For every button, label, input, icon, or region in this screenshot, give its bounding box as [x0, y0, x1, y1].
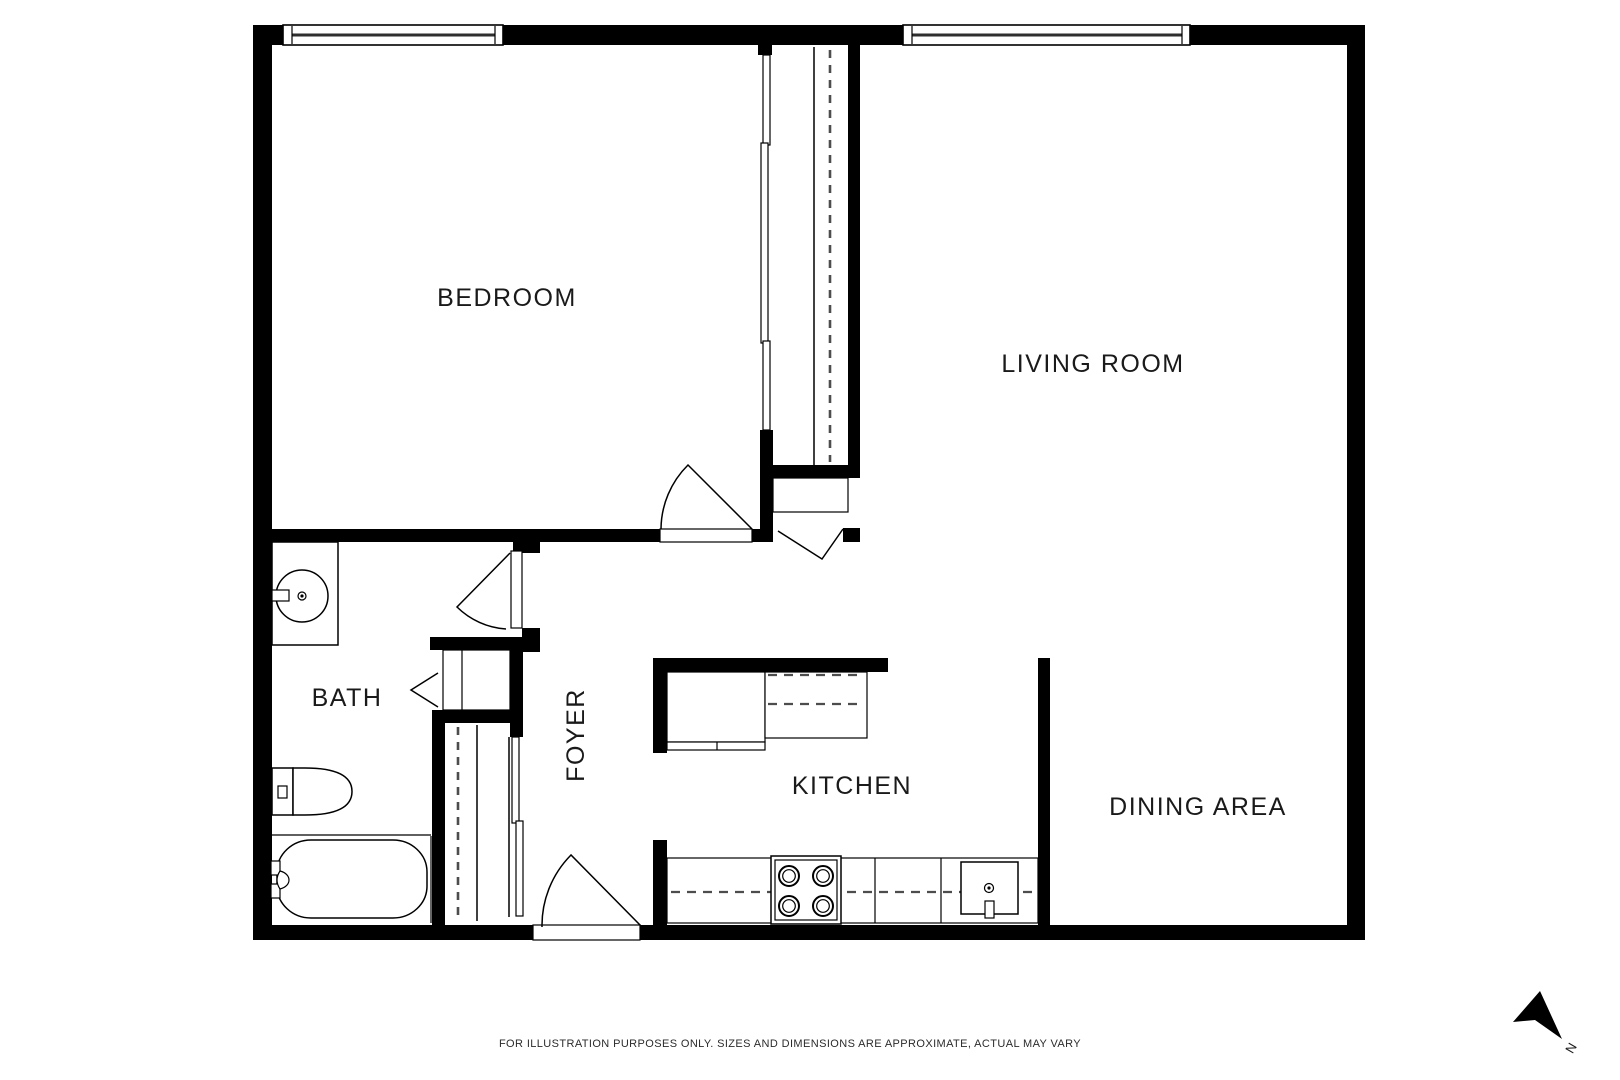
- bathtub: [277, 840, 427, 918]
- north-label: N: [1562, 1040, 1580, 1056]
- linen-closet-interior: [443, 650, 510, 710]
- bedroom-door: [660, 465, 752, 542]
- foyer-closet: [458, 725, 523, 921]
- entry-closet-recess: [773, 478, 848, 512]
- kitchen-label: KITCHEN: [792, 772, 912, 800]
- closet-south-wall: [762, 465, 860, 478]
- bedroom-south-wall: [272, 529, 660, 542]
- door-swing: [457, 553, 510, 629]
- sink-faucet: [272, 590, 289, 601]
- cabinet-shelf: [667, 742, 765, 750]
- entry-closet: [773, 478, 848, 559]
- north-arrow-icon: [1513, 991, 1562, 1039]
- north-arrow: N: [1513, 991, 1580, 1056]
- bedroom-label: BEDROOM: [437, 284, 577, 312]
- bath-label: BATH: [312, 684, 383, 712]
- floor-plan-page: BEDROOM LIVING ROOM BATH FOYER KITCHEN D…: [0, 0, 1620, 1080]
- bathroom-fixtures: [271, 542, 431, 923]
- bedroom-closet: [761, 47, 830, 465]
- foyer-closet-wall-stub: [510, 723, 523, 737]
- foyer-label: FOYER: [562, 688, 590, 782]
- linen-closet: [411, 650, 510, 710]
- living-room-west-wall: [848, 45, 860, 478]
- bath-foyer-wall: [522, 628, 540, 652]
- sink-handle: [985, 901, 994, 918]
- wall-segment: [1190, 25, 1365, 45]
- living-room-window: [903, 25, 1190, 45]
- sliding-door-panel: [516, 821, 523, 916]
- kitchen-north-wall: [653, 658, 888, 672]
- kitchen-dining-wall: [1038, 658, 1050, 930]
- door-swing: [542, 855, 642, 927]
- sliding-door-panel: [512, 737, 519, 823]
- wall-segment: [503, 25, 903, 45]
- closet-wall-stub: [758, 45, 772, 55]
- wall-segment-left: [253, 25, 272, 940]
- door-opening: [660, 529, 752, 542]
- front-entry-door: [533, 855, 642, 940]
- living-room-wall-stub: [843, 528, 860, 542]
- foyer-closet-west-wall: [432, 710, 445, 925]
- sliding-door-panel: [763, 341, 770, 430]
- door-opening: [533, 925, 640, 940]
- disclaimer-text: FOR ILLUSTRATION PURPOSES ONLY. SIZES AN…: [499, 1038, 1081, 1050]
- sink-drain-dot: [300, 594, 303, 597]
- door-swing: [661, 465, 752, 529]
- sink-faucet-dot: [987, 886, 990, 889]
- dining-area-label: DINING AREA: [1109, 793, 1287, 821]
- bifold-door: [411, 673, 438, 707]
- foyer-east-wall-stub: [653, 840, 667, 930]
- bathroom-door: [457, 551, 522, 629]
- linen-closet-wall: [432, 710, 523, 723]
- wall-segment-right: [1347, 25, 1365, 940]
- linen-closet-wall: [430, 637, 523, 650]
- closet-wall: [760, 430, 773, 542]
- bedroom-window: [283, 25, 503, 45]
- sliding-door-panel: [763, 55, 770, 145]
- door-leaf: [511, 551, 522, 628]
- foyer-east-wall: [653, 658, 667, 753]
- living-room-label: LIVING ROOM: [1001, 350, 1184, 378]
- toilet-bowl: [293, 768, 352, 815]
- wall-segment-bottom: [253, 925, 533, 940]
- linen-closet-wall: [510, 650, 523, 711]
- interior-walls: [272, 45, 1050, 930]
- upper-cabinet: [667, 672, 765, 742]
- toilet-flush: [278, 786, 287, 798]
- bifold-door: [778, 529, 843, 559]
- floor-plan-drawing: BEDROOM LIVING ROOM BATH FOYER KITCHEN D…: [0, 0, 1620, 1080]
- wall-segment-bottom: [640, 925, 1365, 940]
- sliding-door-panel: [761, 143, 768, 343]
- room-labels: BEDROOM LIVING ROOM BATH FOYER KITCHEN D…: [312, 284, 1287, 821]
